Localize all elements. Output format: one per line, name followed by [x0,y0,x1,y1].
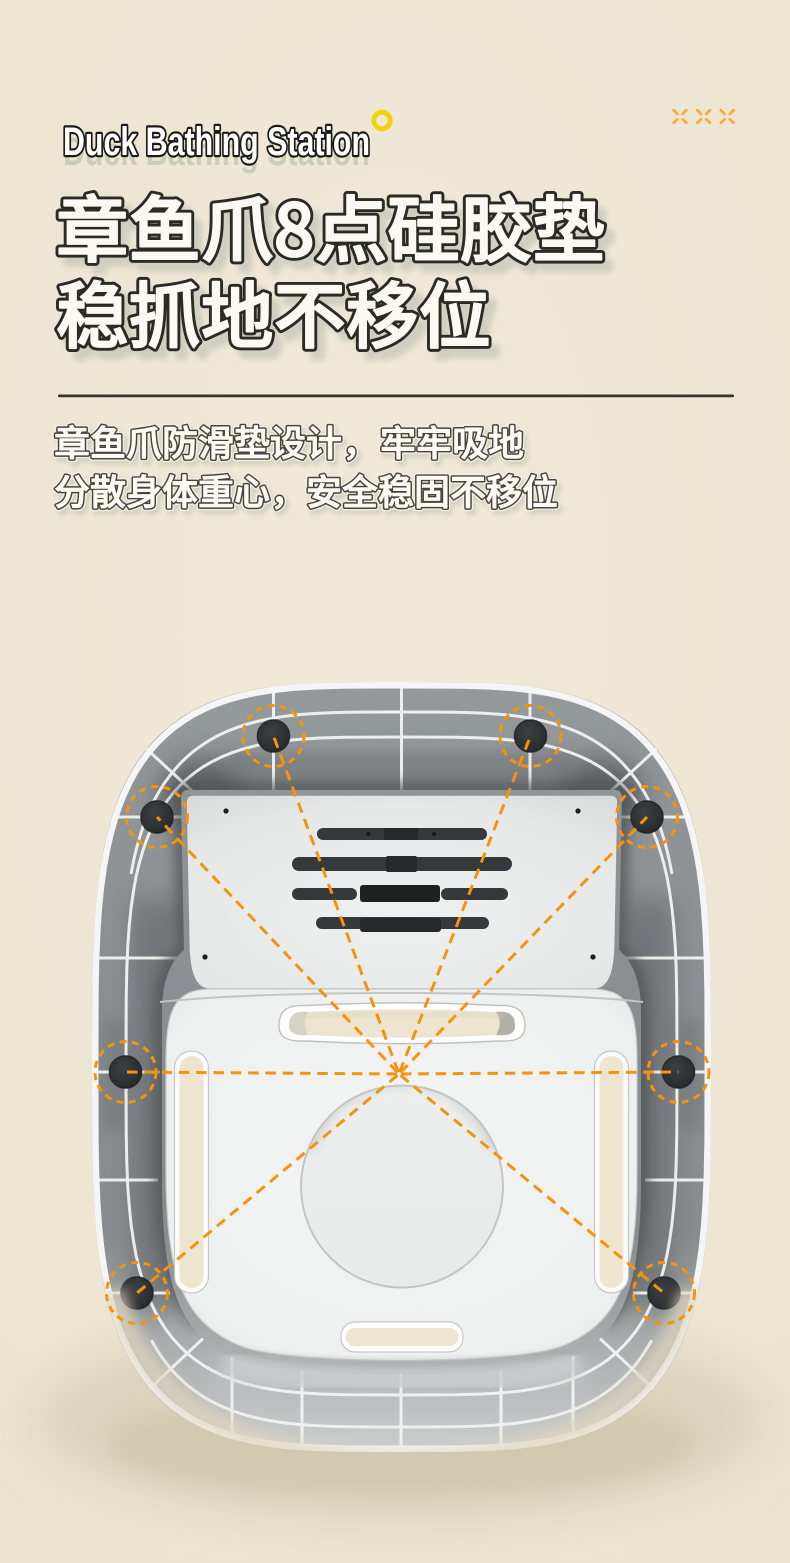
svg-text:Duck Bathing Station: Duck Bathing Station [63,120,370,164]
